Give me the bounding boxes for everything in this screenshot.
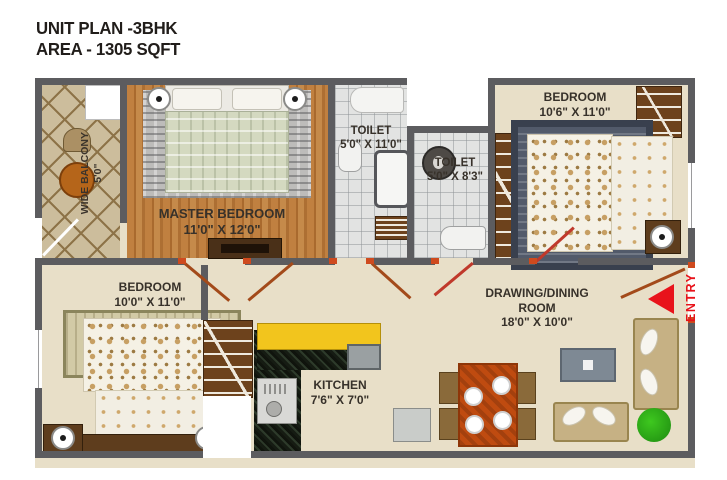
room-dims: 5'0" X 8'3" (403, 170, 507, 184)
dining-table (458, 363, 518, 447)
wall-left (35, 78, 42, 458)
floor-plan-page: UNIT PLAN -3BHK AREA - 1305 SQFT (0, 0, 727, 480)
toilet1-vent-grille (375, 216, 408, 240)
building-notch-top (407, 78, 488, 126)
building-notch-bottom (203, 396, 251, 458)
bedroom-tr-label: BEDROOM 10'6" X 11'0" (500, 90, 650, 119)
wall-top-left (35, 78, 407, 85)
door-jamb (178, 258, 186, 264)
door-jamb (243, 258, 251, 264)
wall-top-right (488, 78, 695, 85)
room-name: DRAWING/DINING (457, 286, 617, 301)
room-dims: 10'6" X 11'0" (500, 105, 650, 120)
wall-master-toilet1 (328, 78, 335, 258)
kitchen-label: KITCHEN 7'6" X 7'0" (280, 378, 400, 407)
wall-bottom (35, 451, 695, 458)
window-line (691, 163, 692, 228)
room-name-2: ROOM (457, 301, 617, 316)
wall-right-lower (688, 321, 695, 458)
bedroom-tr-lamp-icon (650, 225, 674, 249)
room-name: MASTER BEDROOM (132, 206, 312, 222)
plate (493, 411, 512, 430)
wall-mid-5 (578, 258, 688, 265)
door-jamb (529, 258, 537, 264)
wall-mid-1 (35, 258, 185, 265)
drawing-dining-label: DRAWING/DINING ROOM 18'0" X 10'0" (457, 286, 617, 330)
balcony-door-gap (35, 218, 42, 258)
entry-label: ENTRY (684, 258, 698, 322)
plate (464, 387, 483, 406)
bedroom-bl-bed-floral (83, 318, 221, 392)
kitchen-sink (347, 344, 381, 370)
window-line (38, 330, 39, 388)
door-jamb (329, 258, 337, 264)
wall-balcony-master (120, 78, 127, 223)
balcony-label: WIDE BALCONY 5'0" (79, 106, 105, 240)
room-name: BEDROOM (500, 90, 650, 105)
room-dims: 5'0" (92, 106, 105, 240)
door-jamb (366, 258, 374, 264)
master-dresser (208, 238, 282, 259)
bedroom-bl-lamp-left-icon (51, 426, 75, 450)
master-bed-blanket (165, 111, 289, 193)
entry-arrow-icon (648, 284, 674, 314)
plate (492, 376, 511, 395)
room-name: TOILET (321, 124, 421, 138)
toilet2-wc (440, 226, 486, 250)
plan-title: UNIT PLAN -3BHK AREA - 1305 SQFT (36, 18, 180, 60)
room-dims: 7'6" X 7'0" (280, 393, 400, 408)
plan-title-line1: UNIT PLAN -3BHK (36, 18, 180, 39)
wall-mid-3 (372, 258, 435, 265)
toilet1-shower-tray (350, 87, 404, 113)
master-lamp-right-icon (283, 87, 307, 111)
room-dims: 10'0" X 11'0" (80, 295, 220, 310)
room-dims: 5'0" X 11'0" (321, 138, 421, 152)
toilet1-label: TOILET 5'0" X 11'0" (321, 124, 421, 152)
room-name: WIDE BALCONY (79, 106, 92, 240)
master-bed-pillow-left (172, 88, 222, 110)
master-bedroom-label: MASTER BEDROOM 11'0" X 12'0" (132, 206, 312, 238)
wall-mid-4 (473, 258, 535, 265)
room-dims: 18'0" X 10'0" (457, 315, 617, 330)
door-jamb (431, 258, 439, 264)
bedroom-bl-label: BEDROOM 10'0" X 11'0" (80, 280, 220, 309)
plant (637, 408, 671, 442)
plate (465, 415, 484, 434)
bedroom-tr-bed-floral (527, 134, 613, 252)
master-bed-pillow-right (232, 88, 282, 110)
plan-title-line2: AREA - 1305 SQFT (36, 39, 180, 60)
toilet1-door-leaf (371, 262, 411, 299)
master-lamp-left-icon (147, 87, 171, 111)
toilet2-label: TOILET 5'0" X 8'3" (403, 156, 507, 184)
floor-plan: MASTER BEDROOM 11'0" X 12'0" TOILET 5'0"… (35, 78, 695, 468)
room-name: BEDROOM (80, 280, 220, 295)
kitchen-appliance (393, 408, 431, 442)
coffee-table (560, 348, 616, 382)
kitchen-side-wardrobe (203, 320, 253, 398)
master-door-leaf (248, 262, 294, 301)
room-dims: 11'0" X 12'0" (132, 222, 312, 238)
room-name: KITCHEN (280, 378, 400, 393)
room-name: TOILET (403, 156, 507, 170)
